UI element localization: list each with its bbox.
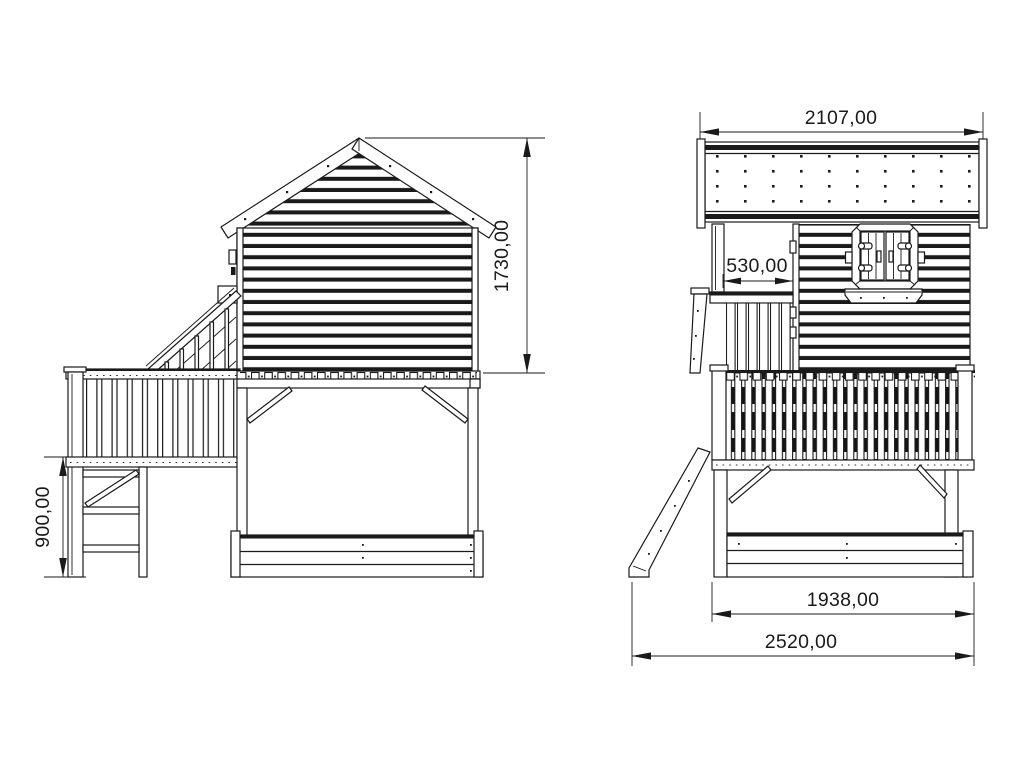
ladder-rail-right bbox=[139, 467, 147, 577]
wall-hinge-lower bbox=[231, 267, 236, 275]
dimension-label-base-width: 1938,00 bbox=[807, 589, 880, 611]
floor-rim-band bbox=[237, 379, 480, 388]
ladder-rung-3 bbox=[83, 545, 139, 552]
dimension-label-total-width: 2520,00 bbox=[765, 631, 838, 653]
house-leg-right bbox=[468, 388, 478, 536]
side-wall bbox=[218, 228, 478, 372]
roof-end-cap-right bbox=[979, 139, 987, 228]
front-balustrade bbox=[710, 365, 975, 470]
slide-ramp bbox=[629, 448, 710, 577]
wall-corner-trim-right bbox=[472, 228, 478, 372]
front-roof bbox=[697, 139, 987, 228]
sandbox-end-post-left bbox=[231, 531, 240, 577]
shutter-handle-left bbox=[877, 251, 881, 262]
balcony-post-cap bbox=[64, 367, 86, 372]
front-wall: 530,00 bbox=[710, 224, 970, 372]
sandbox-end-post-right bbox=[474, 531, 483, 577]
flower-box bbox=[845, 289, 922, 303]
dimension-label-platform-height: 900,00 bbox=[32, 486, 54, 547]
house-leg-left bbox=[237, 388, 247, 536]
wall-hinge-upper bbox=[229, 250, 236, 264]
roof-end-cap-left bbox=[697, 139, 705, 228]
slide-upper-band bbox=[690, 294, 707, 373]
wall-corner-trim-left bbox=[237, 228, 243, 372]
corner-post-left bbox=[712, 224, 724, 292]
technical-drawing: 1730,00 900,00 2107,00 bbox=[0, 0, 1024, 768]
front-sandbox-end-post bbox=[963, 531, 973, 577]
front-brace-left bbox=[729, 466, 771, 503]
window bbox=[845, 224, 925, 303]
shutter-handle-right bbox=[889, 251, 893, 262]
front-leg-left bbox=[714, 470, 727, 577]
ladder-rung-2 bbox=[83, 507, 139, 514]
roof-screw-grid bbox=[706, 150, 979, 212]
slide bbox=[629, 288, 710, 577]
side-view: 1730,00 900,00 bbox=[32, 138, 545, 577]
gable-siding bbox=[230, 150, 488, 230]
front-understructure bbox=[714, 465, 973, 577]
dimension-roof-width: 2107,00 bbox=[700, 107, 983, 141]
window-latch-left bbox=[846, 252, 853, 263]
front-view: 2107,00 bbox=[629, 107, 987, 666]
window-latch-right bbox=[918, 252, 925, 263]
balcony-floor-rim bbox=[66, 457, 240, 467]
leg-brace-right bbox=[422, 386, 468, 423]
balcony-end-post bbox=[68, 372, 83, 577]
dimension-label-porch-opening: 530,00 bbox=[726, 255, 787, 277]
dimension-base-width: 1938,00 bbox=[712, 582, 974, 666]
ladder bbox=[83, 467, 147, 577]
deck-board-ends bbox=[713, 372, 975, 381]
leg-brace-left bbox=[247, 387, 292, 423]
stair-rail-balusters bbox=[165, 309, 229, 371]
stair-railing bbox=[146, 288, 241, 374]
balustrade-post-right bbox=[958, 368, 972, 460]
dimension-label-roof-width: 2107,00 bbox=[805, 107, 878, 129]
porch-balusters bbox=[726, 303, 792, 371]
balustrade-planks bbox=[724, 373, 958, 460]
balustrade-post-left bbox=[712, 368, 726, 460]
dimension-total-width: 2520,00 bbox=[632, 582, 974, 666]
dimension-porch-opening: 530,00 bbox=[723, 255, 793, 288]
slide-top-cap bbox=[691, 288, 709, 294]
drawing-canvas: 1730,00 900,00 2107,00 bbox=[0, 0, 1024, 768]
side-sandbox bbox=[231, 531, 483, 577]
dimension-label-house-height: 1730,00 bbox=[491, 220, 513, 293]
side-understructure bbox=[237, 371, 480, 536]
balcony-balusters bbox=[86, 379, 238, 459]
front-sandbox bbox=[727, 531, 973, 577]
